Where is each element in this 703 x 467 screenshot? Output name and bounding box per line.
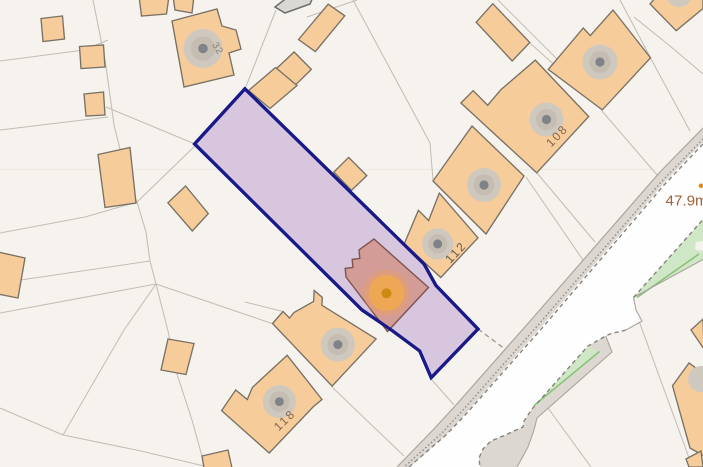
svg-text:47.9m: 47.9m (666, 193, 703, 210)
